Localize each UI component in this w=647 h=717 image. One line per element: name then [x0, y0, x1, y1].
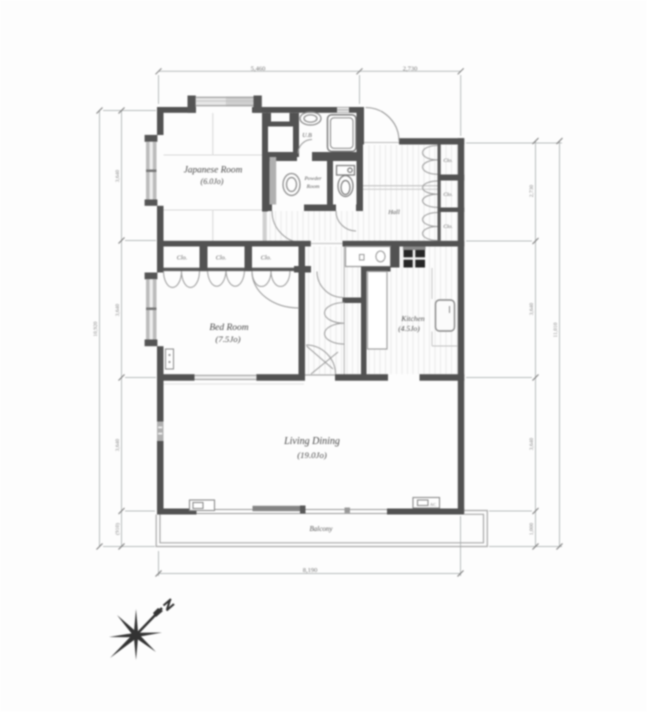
svg-text:1,000: 1,000: [529, 523, 535, 536]
svg-text:8,190: 8,190: [303, 567, 318, 574]
svg-text:Clo.: Clo.: [261, 255, 272, 262]
svg-text:Balcony: Balcony: [310, 525, 334, 533]
svg-text:(910): (910): [114, 523, 121, 535]
svg-text:AC: AC: [430, 502, 436, 507]
svg-text:Bed Room: Bed Room: [209, 323, 248, 333]
svg-text:3,640: 3,640: [529, 303, 535, 316]
svg-text:Hall: Hall: [387, 209, 400, 216]
svg-text:3,640: 3,640: [115, 439, 121, 452]
svg-text:(19.0Jo): (19.0Jo): [297, 450, 327, 460]
svg-text:2,730: 2,730: [403, 66, 418, 73]
svg-text:Japanese Room: Japanese Room: [184, 166, 243, 176]
svg-text:3,640: 3,640: [115, 304, 121, 317]
svg-text:3,640: 3,640: [115, 170, 121, 183]
svg-text:Clo.: Clo.: [443, 224, 452, 230]
svg-text:11,010: 11,010: [553, 322, 559, 337]
svg-text:Powder: Powder: [303, 176, 322, 182]
svg-text:Clo.: Clo.: [443, 158, 452, 164]
svg-text:5,460: 5,460: [251, 66, 266, 73]
svg-text:2,730: 2,730: [529, 185, 535, 198]
svg-text:10,920: 10,920: [93, 321, 99, 336]
svg-text:3,640: 3,640: [529, 438, 535, 451]
svg-text:(6.0Jo): (6.0Jo): [201, 177, 224, 186]
svg-text:Room: Room: [306, 184, 320, 190]
svg-text:(7.5Jo): (7.5Jo): [215, 334, 240, 344]
svg-text:Living Dining: Living Dining: [283, 436, 340, 447]
svg-text:U.B: U.B: [302, 133, 312, 139]
svg-text:(4.5Jo): (4.5Jo): [398, 324, 420, 333]
svg-text:Clo.: Clo.: [216, 255, 227, 262]
svg-text:Clo.: Clo.: [177, 255, 188, 262]
svg-text:Kitchen: Kitchen: [400, 314, 425, 323]
svg-text:Clo.: Clo.: [443, 192, 452, 198]
